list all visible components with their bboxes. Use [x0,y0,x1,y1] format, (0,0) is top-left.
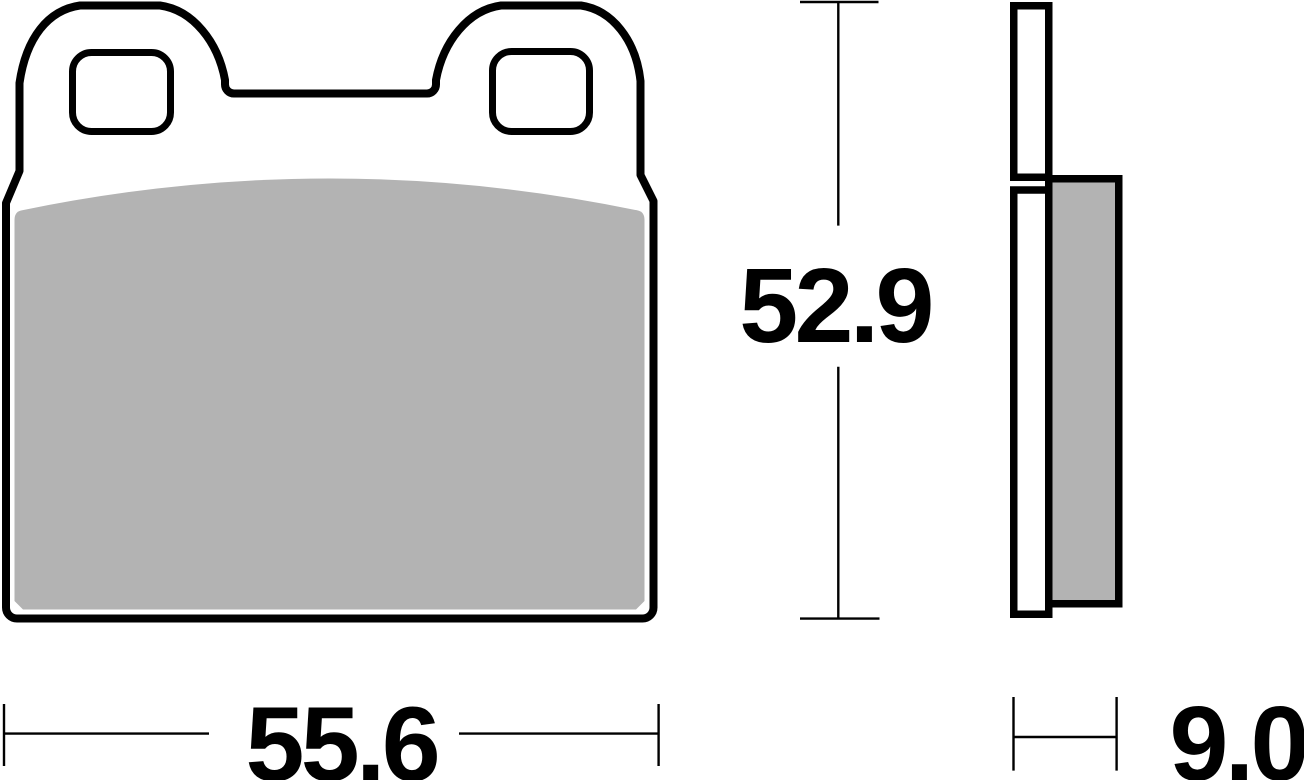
svg-text:55.6: 55.6 [246,686,438,780]
svg-text:9.0: 9.0 [1170,685,1304,780]
svg-text:52.9: 52.9 [739,247,931,365]
